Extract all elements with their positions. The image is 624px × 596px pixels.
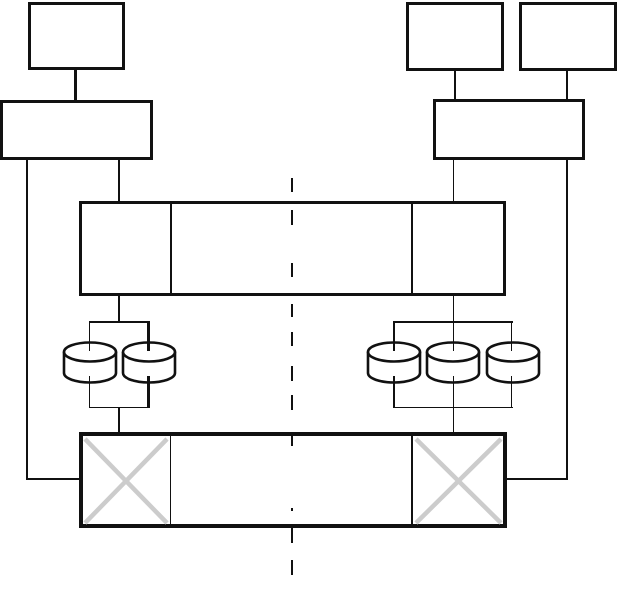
top-right-upper-box-1 — [406, 2, 504, 71]
lower-bus-divider-left — [170, 435, 172, 525]
left-inner-drop — [118, 160, 121, 202]
disk-cylinder-right-3 — [485, 340, 541, 386]
right-disk-stub-bottom-1 — [393, 376, 395, 407]
left-disk-stub-top-2 — [147, 322, 150, 351]
right-inner-drop — [453, 160, 455, 202]
left-outer-drop-horizontal — [26, 478, 81, 480]
center-dashed-divider-segment — [291, 508, 293, 511]
right-outer-drop-vertical — [566, 160, 568, 479]
upper-bus-divider-right — [411, 203, 413, 294]
center-dashed-divider-segment — [291, 436, 293, 446]
left-bracket-to-lower-bus — [118, 407, 121, 432]
right-outer-drop-horizontal — [505, 478, 568, 480]
center-dashed-divider-segment — [291, 332, 293, 346]
lower-bus-divider-right — [411, 435, 413, 525]
connector-top-left — [74, 70, 77, 100]
right-disk-stub-top-3 — [511, 322, 513, 351]
left-disk-stub-bottom-1 — [89, 376, 91, 407]
left-outer-drop-vertical — [26, 160, 28, 479]
connector-top-right-2 — [566, 71, 568, 99]
left-bus-to-bracket — [118, 295, 121, 322]
center-dashed-divider-segment — [291, 560, 293, 575]
crossed-out-section-left — [83, 437, 169, 525]
center-dashed-divider-segment — [291, 304, 293, 317]
right-disk-stub-bottom-2 — [453, 376, 455, 407]
center-dashed-divider-segment — [291, 210, 293, 225]
right-disk-stub-top-1 — [393, 322, 395, 351]
right-disk-stub-top-2 — [453, 322, 455, 351]
connector-top-right-1 — [454, 71, 456, 99]
left-disk-stub-bottom-2 — [147, 376, 150, 407]
right-bus-to-bracket — [453, 295, 455, 322]
top-left-upper-box — [28, 2, 125, 70]
center-dashed-divider-segment — [291, 263, 293, 277]
top-left-lower-box — [0, 100, 153, 160]
left-disk-stub-top-1 — [89, 322, 91, 351]
center-dashed-divider-segment — [291, 528, 293, 543]
center-dashed-divider-segment — [291, 395, 293, 410]
crossed-out-section-right — [414, 437, 503, 525]
diagram-canvas — [0, 0, 624, 596]
upper-bus-divider-left — [170, 203, 172, 294]
left-bracket-top — [89, 321, 150, 323]
top-right-upper-box-2 — [519, 2, 617, 71]
top-right-lower-box — [433, 99, 585, 160]
right-disk-stub-bottom-3 — [511, 376, 513, 407]
right-bracket-to-lower-bus — [453, 407, 455, 432]
center-dashed-divider-segment — [291, 178, 293, 192]
center-dashed-divider-segment — [291, 366, 293, 381]
